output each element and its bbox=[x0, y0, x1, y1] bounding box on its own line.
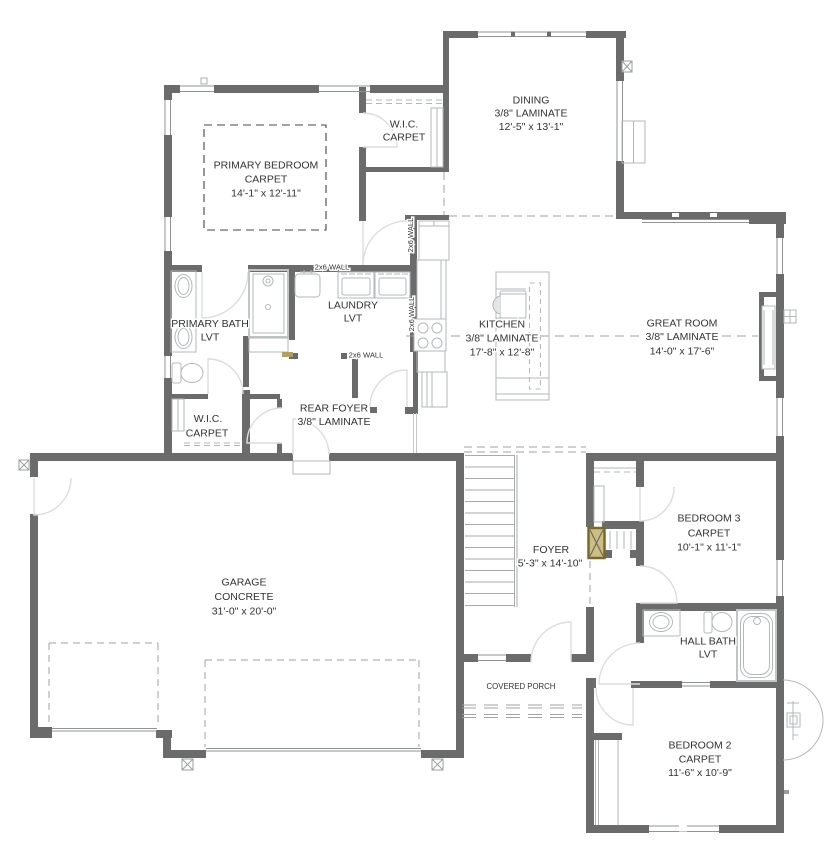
svg-text:17'-8" x 12'-8": 17'-8" x 12'-8" bbox=[470, 347, 535, 359]
svg-text:W.I.C.: W.I.C. bbox=[194, 413, 223, 425]
svg-text:3/8" LAMINATE: 3/8" LAMINATE bbox=[298, 416, 371, 428]
svg-text:CARPET: CARPET bbox=[679, 754, 722, 766]
svg-text:PRIMARY BEDROOM: PRIMARY BEDROOM bbox=[214, 160, 319, 172]
svg-text:CARPET: CARPET bbox=[186, 428, 229, 440]
svg-text:PRIMARY BATH: PRIMARY BATH bbox=[171, 318, 249, 330]
svg-text:3/8" LAMINATE: 3/8" LAMINATE bbox=[646, 331, 719, 343]
svg-text:CARPET: CARPET bbox=[383, 132, 426, 144]
svg-text:CONCRETE: CONCRETE bbox=[215, 591, 274, 603]
svg-text:LAUNDRY: LAUNDRY bbox=[328, 300, 378, 312]
svg-text:2x6 WALL: 2x6 WALL bbox=[349, 351, 384, 360]
svg-text:GARAGE: GARAGE bbox=[222, 577, 267, 589]
svg-text:HALL BATH: HALL BATH bbox=[680, 636, 736, 648]
svg-text:2x6 WALL: 2x6 WALL bbox=[407, 297, 416, 332]
svg-text:BEDROOM 2: BEDROOM 2 bbox=[668, 740, 731, 752]
svg-text:W.I.C.: W.I.C. bbox=[390, 119, 419, 131]
svg-text:LVT: LVT bbox=[699, 649, 718, 661]
svg-text:12'-5" x 13'-1": 12'-5" x 13'-1" bbox=[499, 121, 564, 133]
svg-text:10'-1" x 11'-1": 10'-1" x 11'-1" bbox=[677, 542, 741, 554]
svg-text:LVT: LVT bbox=[344, 313, 363, 325]
svg-text:31'-0" x 20'-0": 31'-0" x 20'-0" bbox=[212, 606, 277, 618]
svg-text:CARPET: CARPET bbox=[245, 174, 288, 186]
svg-text:REAR FOYER: REAR FOYER bbox=[300, 403, 369, 415]
svg-text:COVERED PORCH: COVERED PORCH bbox=[487, 682, 556, 691]
svg-text:14'-1" x 12'-11": 14'-1" x 12'-11" bbox=[231, 188, 301, 200]
svg-text:2x6 WALL: 2x6 WALL bbox=[315, 263, 350, 272]
svg-text:LVT: LVT bbox=[201, 332, 220, 344]
svg-text:3/8" LAMINATE: 3/8" LAMINATE bbox=[495, 108, 568, 120]
svg-text:GREAT ROOM: GREAT ROOM bbox=[647, 318, 718, 330]
svg-text:3/8" LAMINATE: 3/8" LAMINATE bbox=[466, 333, 539, 345]
svg-text:11'-6" x 10'-9": 11'-6" x 10'-9" bbox=[668, 767, 732, 779]
svg-text:5'-3" x 14'-10": 5'-3" x 14'-10" bbox=[518, 558, 583, 570]
svg-text:14'-0" x 17'-6": 14'-0" x 17'-6" bbox=[650, 346, 715, 358]
svg-text:DINING: DINING bbox=[513, 95, 550, 107]
svg-text:CARPET: CARPET bbox=[688, 528, 731, 540]
svg-text:KITCHEN: KITCHEN bbox=[479, 319, 525, 331]
svg-text:BEDROOM 3: BEDROOM 3 bbox=[677, 513, 740, 525]
svg-text:2x6 WALL: 2x6 WALL bbox=[406, 218, 415, 253]
svg-text:FOYER: FOYER bbox=[533, 544, 570, 556]
